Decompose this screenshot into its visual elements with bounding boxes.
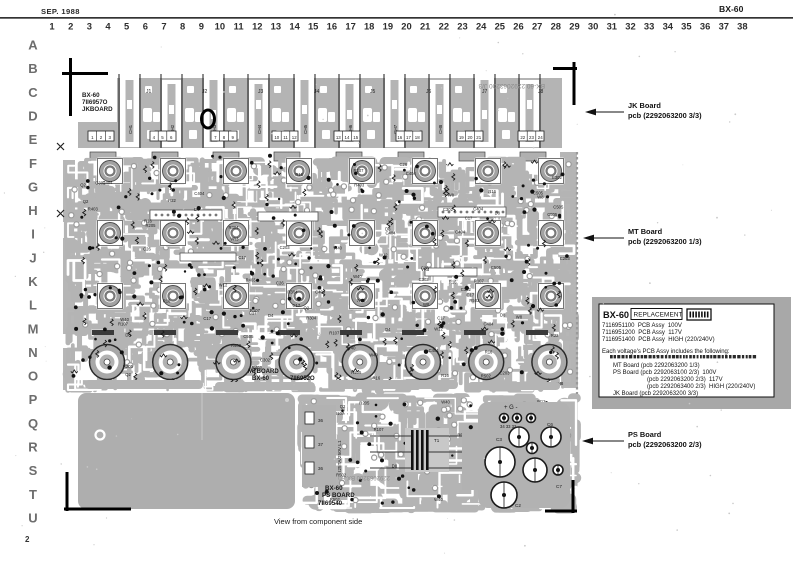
svg-text:C26: C26 [143,247,151,252]
svg-text:20: 20 [401,21,411,32]
svg-text:R107: R107 [354,168,365,173]
svg-text:36: 36 [318,466,324,471]
svg-text:MT Board: MT Board [628,227,663,236]
svg-text:R107: R107 [374,427,385,432]
svg-text:W12: W12 [219,283,228,288]
svg-text:J6: J6 [426,89,432,95]
svg-text:R107: R107 [329,330,340,335]
svg-text:D4: D4 [268,313,274,318]
svg-text:C404: C404 [194,191,205,196]
svg-text:D4: D4 [385,327,391,332]
svg-text:I25TA/250V L1: I25TA/250V L1 [337,440,343,472]
svg-text:3: 3 [87,21,92,32]
svg-text:C17: C17 [249,310,257,315]
svg-text:S: S [29,463,38,478]
svg-text:10: 10 [274,135,279,140]
svg-text:pcb (2292063200 1/3): pcb (2292063200 1/3) [628,237,702,246]
svg-text:5: 5 [124,21,129,32]
svg-text:19: 19 [383,21,393,32]
svg-text:PS Board: PS Board [628,430,662,439]
svg-text:CH8: CH8 [438,124,443,134]
svg-text:R16: R16 [373,375,381,380]
svg-text:C302: C302 [552,175,563,180]
svg-text:7116951100 PCB Assy 100V: 7116951100 PCB Assy 100V [602,323,682,329]
svg-text:18: 18 [415,135,420,140]
svg-text:D: D [28,108,37,123]
svg-text:T1: T1 [434,438,440,443]
svg-text:C302: C302 [443,207,454,212]
svg-text:7116951200 PCB Assy 117V: 7116951200 PCB Assy 117V [602,330,682,336]
svg-text:W8: W8 [516,314,523,319]
svg-text:O: O [28,369,38,384]
svg-text:C505: C505 [243,334,254,339]
svg-text:R304: R304 [306,316,317,321]
svg-text:BX-60: BX-60 [82,92,100,99]
svg-text:Q: Q [28,416,38,431]
svg-text:36: 36 [318,418,324,423]
svg-text:7: 7 [161,21,166,32]
svg-text:37: 37 [318,442,324,447]
svg-text:C302: C302 [260,357,271,362]
svg-text:9: 9 [199,21,204,32]
svg-text:C203: C203 [280,245,291,250]
svg-text:VR3: VR3 [421,267,430,272]
svg-text:W40: W40 [369,353,378,358]
svg-text:R205: R205 [123,364,134,369]
svg-text:Q2: Q2 [125,372,131,377]
svg-text:I: I [31,227,35,242]
svg-text:View from component side: View from component side [274,517,362,526]
svg-text:37: 37 [719,21,729,32]
svg-text:13: 13 [271,21,281,32]
svg-text:JK Board: JK Board [628,101,661,110]
svg-text:J3: J3 [258,89,264,95]
svg-text:D8: D8 [500,312,506,317]
svg-text:R22: R22 [551,333,559,338]
svg-text:R403: R403 [231,343,242,348]
svg-text:1: 1 [49,21,54,32]
svg-text:B: B [28,61,37,76]
svg-text:C17: C17 [437,316,445,321]
svg-text:31: 31 [607,21,617,32]
svg-text:W40: W40 [347,345,356,350]
svg-text:P: P [29,392,38,407]
svg-text:R16: R16 [449,280,457,285]
svg-text:J5: J5 [370,89,376,95]
svg-text:W12: W12 [379,252,388,257]
svg-text:H: H [28,203,37,218]
svg-text:Q2: Q2 [304,305,310,310]
svg-text:R205: R205 [359,401,370,406]
svg-text:J4: J4 [314,89,320,95]
svg-text:W40: W40 [333,246,342,251]
svg-text:L: L [29,298,37,313]
svg-text:25: 25 [495,21,505,32]
svg-text:36: 36 [700,21,710,32]
svg-text:2: 2 [25,535,30,544]
svg-text:24: 24 [476,21,487,32]
svg-text:C404: C404 [406,171,417,176]
svg-text:6: 6 [143,21,148,32]
svg-text:(pcb 2292063200 2/3) 117V: (pcb 2292063200 2/3) 117V [647,377,723,383]
svg-text:22: 22 [520,135,525,140]
svg-text:C17: C17 [465,216,473,221]
svg-text:W8: W8 [423,302,430,307]
svg-text:K: K [28,274,38,289]
svg-text:BX-60: BX-60 [603,310,629,320]
svg-text:C404: C404 [455,229,466,234]
svg-text:14: 14 [289,21,300,32]
svg-text:J2: J2 [202,89,208,95]
svg-text:+ G -: + G - [504,405,518,411]
svg-text:C: C [28,85,38,100]
svg-text:R: R [28,440,38,455]
svg-text:Q2: Q2 [80,183,86,188]
svg-text:D4: D4 [194,207,200,212]
svg-text:38: 38 [737,21,747,32]
svg-text:pcb (2292063200 2/3): pcb (2292063200 2/3) [628,440,702,449]
svg-text:pcb (2292063200 3/3): pcb (2292063200 3/3) [628,111,702,120]
svg-text:C404: C404 [484,322,495,327]
svg-text:15: 15 [353,135,358,140]
svg-text:R502: R502 [469,298,480,303]
svg-text:R22: R22 [168,198,176,203]
svg-text:17: 17 [345,21,355,32]
svg-text:C404: C404 [473,207,484,212]
svg-text:11: 11 [234,21,244,32]
svg-text:C26: C26 [276,281,284,286]
svg-text:M: M [28,321,39,336]
svg-text:2292063200 BX-60: 2292063200 BX-60 [338,474,390,480]
svg-text:R107: R107 [474,278,485,283]
svg-text:W40: W40 [120,317,129,322]
svg-text:C505: C505 [547,212,558,217]
svg-text:7II69540: 7II69540 [318,500,343,507]
svg-text:BX-60: BX-60 [325,485,343,492]
svg-text:R107: R107 [118,321,129,326]
svg-text:D8: D8 [125,333,131,338]
svg-text:C302: C302 [419,277,430,282]
svg-text:Each voltage's PCB Assy includ: Each voltage's PCB Assy includes the fol… [602,349,730,355]
svg-text:W40: W40 [357,298,366,303]
svg-text:E: E [29,132,38,147]
svg-text:16: 16 [327,21,337,32]
svg-text:BX-60: BX-60 [719,4,744,14]
svg-text:R16: R16 [485,350,493,355]
svg-text:N: N [28,345,37,360]
svg-text:2: 2 [68,21,73,32]
svg-text:27: 27 [532,21,542,32]
svg-text:C26: C26 [400,162,408,167]
svg-text:CH1: CH1 [128,124,133,134]
svg-text:30: 30 [588,21,598,32]
svg-text:R205: R205 [351,370,362,375]
svg-text:C302: C302 [461,287,472,292]
svg-text:G: G [28,179,38,194]
svg-text:18: 18 [364,21,374,32]
svg-text:W12: W12 [434,326,443,331]
svg-text:C3: C3 [496,437,502,442]
svg-text:C505: C505 [553,205,564,210]
svg-text:C6: C6 [547,422,553,427]
svg-text:BX-60 2292063200 J/3: BX-60 2292063200 J/3 [478,82,545,89]
svg-text:PS BOARD: PS BOARD [322,492,355,499]
svg-text:35: 35 [681,21,691,32]
svg-text:C404: C404 [429,348,440,353]
svg-text:17: 17 [406,135,411,140]
svg-text:MTBOARD: MTBOARD [248,369,279,375]
svg-text:21: 21 [420,21,430,32]
svg-text:11: 11 [283,135,288,140]
svg-text:R403: R403 [88,207,99,212]
svg-text:29: 29 [569,21,579,32]
svg-text:12: 12 [252,21,262,32]
svg-text:(pcb 2292063400 2/3) HIGH (22: (pcb 2292063400 2/3) HIGH (220/240V) [647,384,755,390]
svg-text:32: 32 [625,21,635,32]
svg-text:JKBOARD: JKBOARD [82,106,113,113]
svg-text:PS Board (pcb 2292063100 2/3): PS Board (pcb 2292063100 2/3) 100V [613,370,716,376]
svg-text:23: 23 [457,21,467,32]
svg-text:SEP. 1988: SEP. 1988 [41,7,80,16]
svg-text:C505: C505 [491,265,502,270]
svg-text:MT Board (pcb 2292063200 1/3): MT Board (pcb 2292063200 1/3) [613,363,700,369]
svg-text:R16: R16 [488,189,496,194]
svg-text:J: J [29,250,36,265]
svg-text:33: 33 [644,21,654,32]
svg-text:C203: C203 [560,256,571,261]
svg-text:A: A [28,38,38,53]
svg-text:7II6957O: 7II6957O [82,99,108,106]
svg-text:34: 34 [663,21,674,32]
svg-text:C302: C302 [95,180,106,185]
svg-text:C203: C203 [500,371,511,376]
svg-text:14: 14 [345,135,350,140]
svg-text:R304: R304 [287,290,298,295]
svg-text:26: 26 [513,21,523,32]
svg-text:R16: R16 [441,373,449,378]
svg-text:REPLACEMENT: REPLACEMENT [634,312,683,319]
svg-text:W40: W40 [434,497,443,502]
svg-text:4: 4 [105,21,111,32]
svg-text:W8: W8 [537,195,544,200]
svg-text:20: 20 [468,135,473,140]
svg-text:JK Board (pcb 2292063200 3/3): JK Board (pcb 2292063200 3/3) [613,391,698,397]
svg-text:8: 8 [180,21,185,32]
svg-text:T: T [29,487,37,502]
svg-text:W40: W40 [441,399,450,404]
svg-text:19: 19 [459,135,464,140]
svg-text:C404: C404 [315,290,326,295]
svg-text:Q2: Q2 [83,199,89,204]
svg-text:VR3: VR3 [230,237,239,242]
svg-text:J1: J1 [146,89,152,95]
svg-text:R403: R403 [246,278,257,283]
svg-text:R304: R304 [229,225,240,230]
svg-text:W40: W40 [353,274,362,279]
svg-text:C7: C7 [556,484,562,489]
svg-text:R16: R16 [163,299,171,304]
svg-text:15: 15 [308,21,318,32]
svg-text:R16: R16 [295,172,303,177]
svg-text:23: 23 [529,135,534,140]
svg-text:13: 13 [336,135,341,140]
svg-text:CH4: CH4 [257,124,262,134]
svg-text:10: 10 [215,21,225,32]
svg-text:7II6952O: 7II6952O [290,376,315,382]
svg-text:D8: D8 [495,211,501,216]
svg-text:12: 12 [292,135,297,140]
svg-text:R502: R502 [481,374,492,379]
svg-text:F: F [29,156,37,171]
svg-text:C2: C2 [515,503,521,508]
svg-text:D8: D8 [385,227,391,232]
svg-text:U: U [28,511,37,526]
svg-text:CH5: CH5 [303,124,308,134]
svg-text:R403: R403 [354,183,365,188]
svg-text:7116951400 PCB Assy HIGH (22: 7116951400 PCB Assy HIGH (220/240V) [602,337,715,343]
svg-text:22: 22 [439,21,449,32]
svg-text:C17: C17 [203,316,211,321]
svg-text:BX-60: BX-60 [252,376,270,382]
svg-text:C17: C17 [293,303,301,308]
svg-text:21: 21 [476,135,481,140]
svg-text:C17: C17 [467,293,475,298]
svg-text:R205: R205 [146,223,157,228]
svg-text:16: 16 [397,135,402,140]
svg-text:24: 24 [538,135,543,140]
svg-text:28: 28 [551,21,561,32]
svg-text:Q2: Q2 [340,404,346,409]
svg-text:C17: C17 [238,255,246,260]
